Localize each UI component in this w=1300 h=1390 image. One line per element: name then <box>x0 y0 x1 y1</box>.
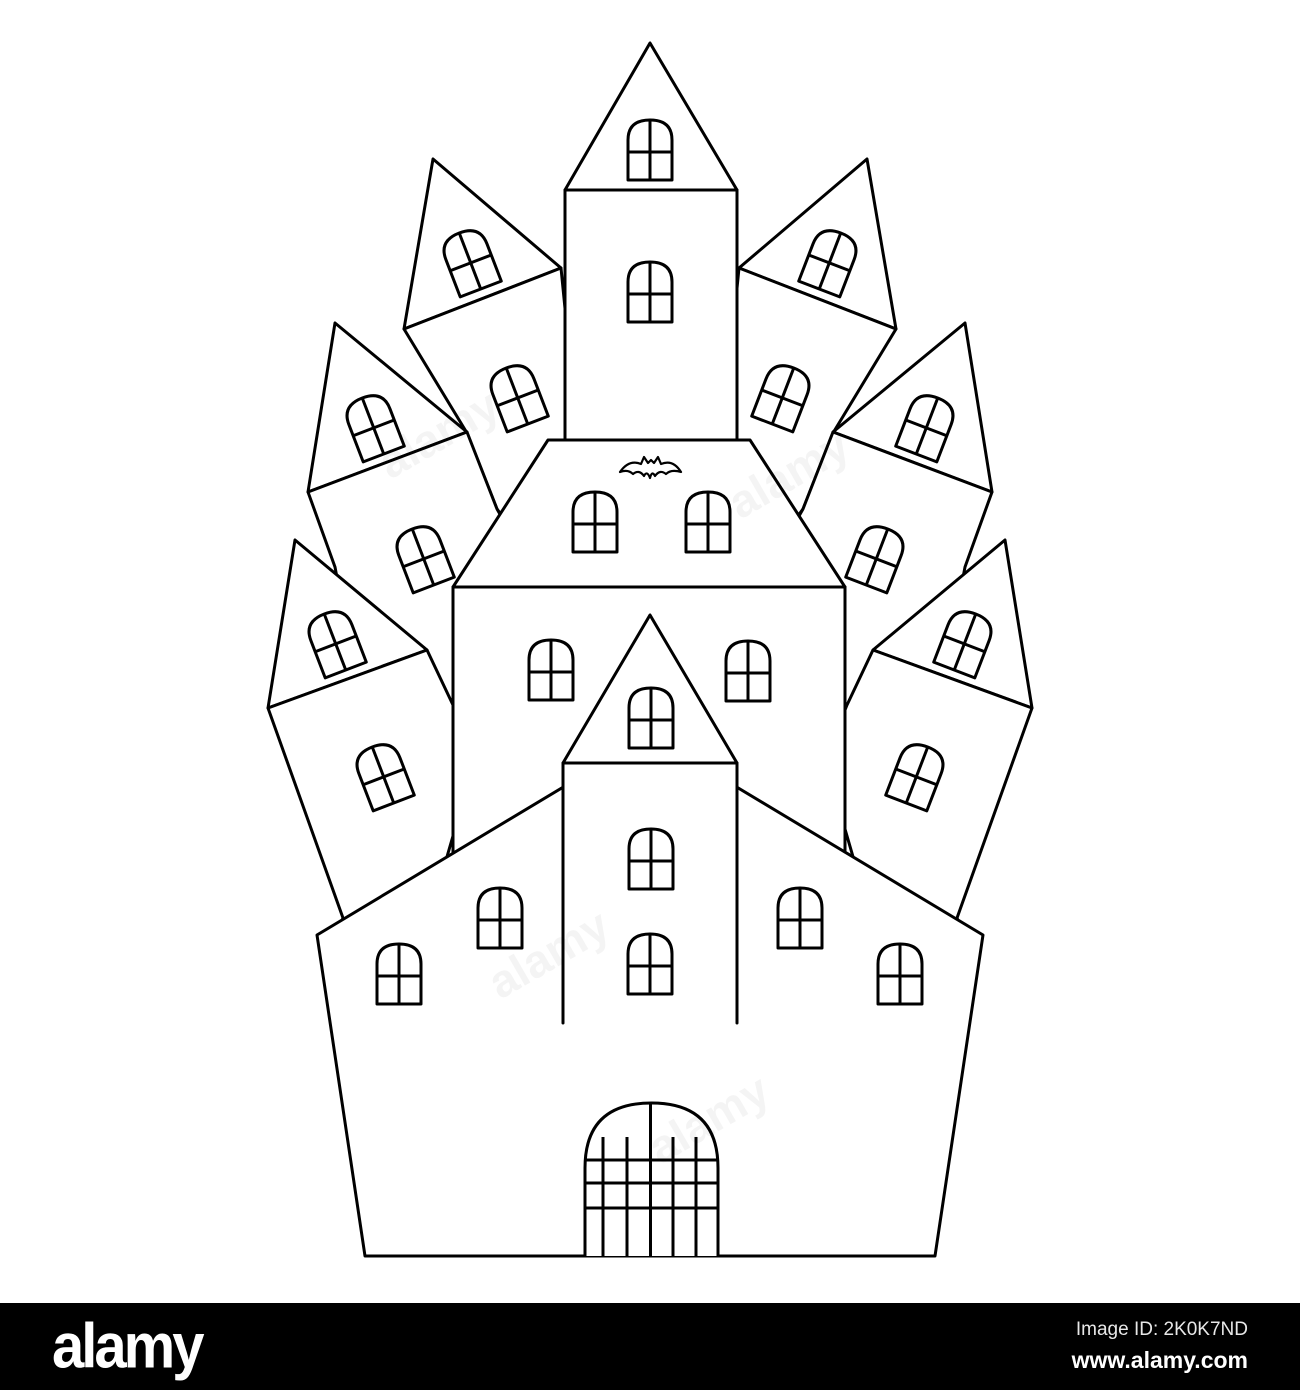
alamy-stock-image-page: alamyalamyalamyalamy alamy Image ID: 2K0… <box>0 0 1300 1390</box>
main-left-outer-window <box>377 944 421 1004</box>
footer-meta: Image ID: 2K0K7ND www.alamy.com <box>1072 1319 1248 1374</box>
middle-body-right-window <box>726 641 770 701</box>
middle-roof-left-window <box>573 492 617 552</box>
front-tower-lower-window <box>628 934 672 994</box>
middle-roof-right-window <box>686 492 730 552</box>
alamy-footer-bar: alamy Image ID: 2K0K7ND www.alamy.com <box>0 1303 1300 1390</box>
main-right-inner-window <box>778 888 822 948</box>
alamy-logo: alamy <box>52 1315 201 1378</box>
front-tower-upper-window <box>629 829 673 889</box>
haunted-castle-illustration: alamyalamyalamyalamy <box>0 0 1300 1303</box>
central-body-window <box>628 262 672 322</box>
main-right-outer-window <box>878 944 922 1004</box>
front-tower-roof-window <box>629 688 673 748</box>
middle-body-left-window <box>529 640 573 700</box>
main-left-inner-window <box>478 888 522 948</box>
central-roof-window <box>628 120 672 180</box>
image-id-text: Image ID: 2K0K7ND <box>1072 1319 1248 1341</box>
alamy-url-text: www.alamy.com <box>1072 1347 1248 1374</box>
